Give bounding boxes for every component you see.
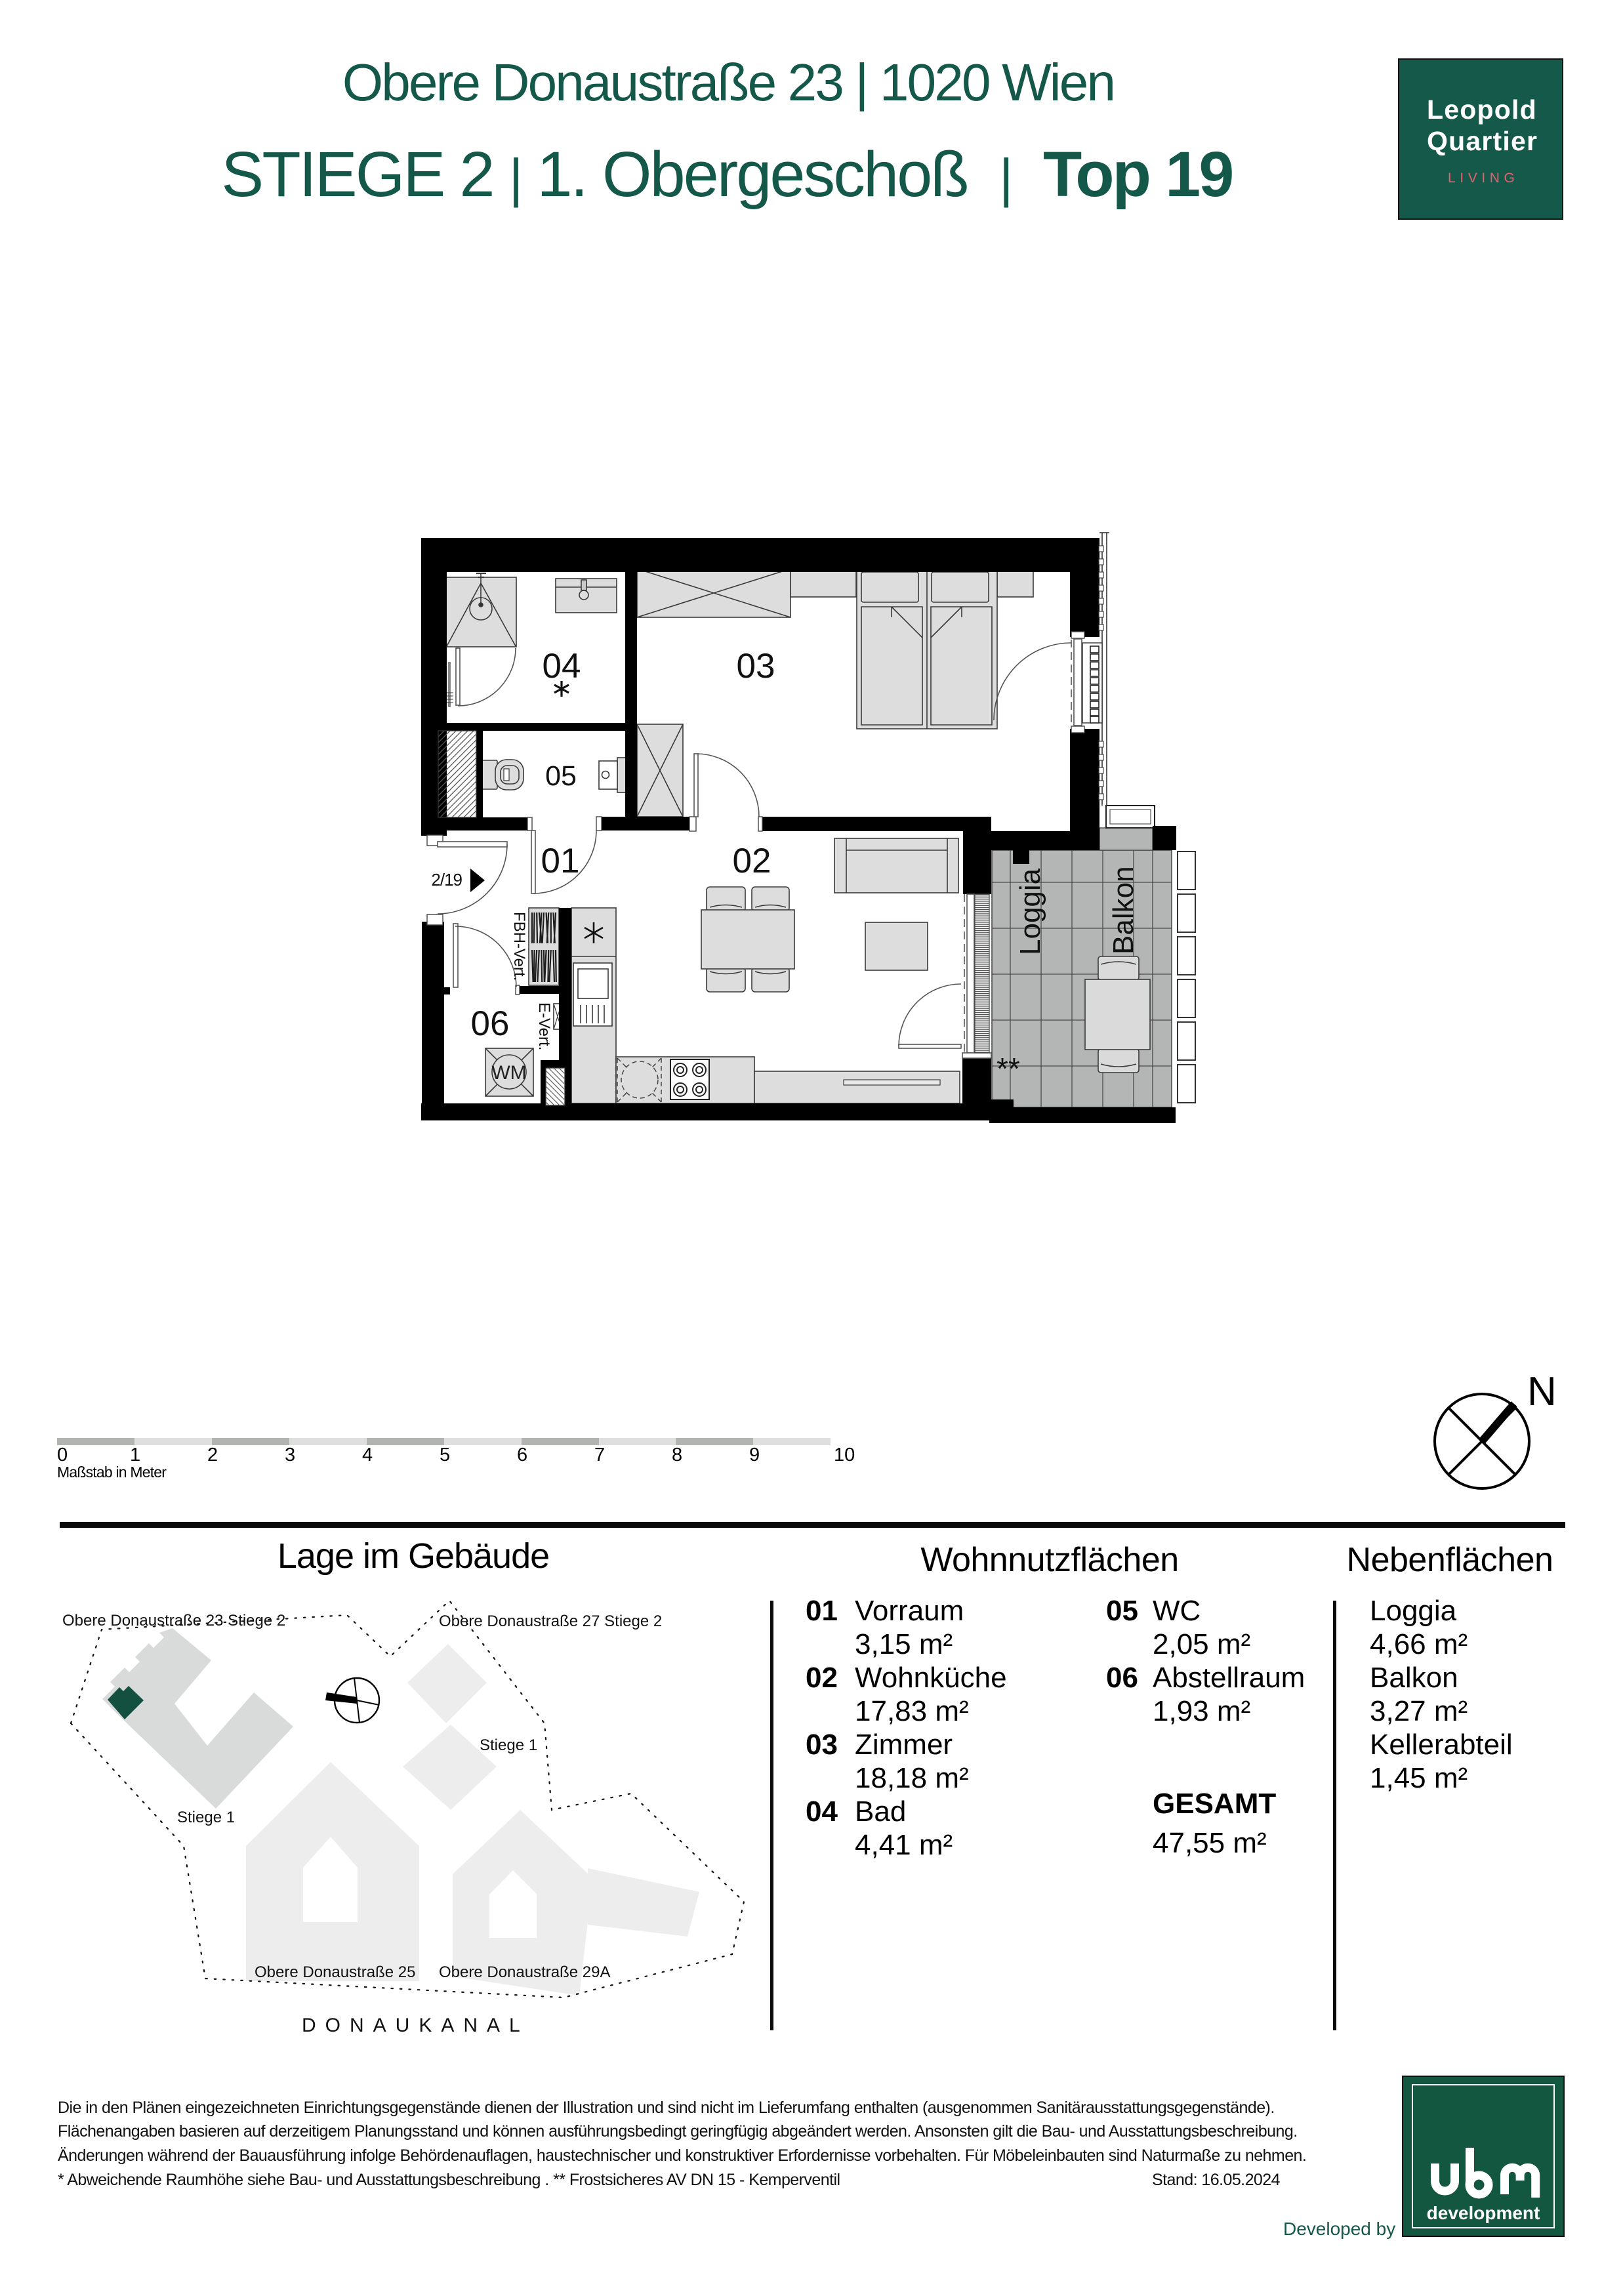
svg-text:05: 05 (545, 760, 577, 792)
svg-text:2/19: 2/19 (431, 870, 462, 890)
svg-text:Obere Donaustraße 25: Obere Donaustraße 25 (255, 1963, 415, 1981)
svg-text:04: 04 (543, 647, 581, 686)
svg-text:06: 06 (471, 1004, 510, 1043)
svg-text:E-Vert.: E-Vert. (535, 1002, 553, 1050)
svg-text:01: 01 (541, 842, 580, 880)
svg-text:WM: WM (491, 1062, 526, 1084)
svg-text:02: 02 (733, 842, 771, 880)
svg-text:Balkon: Balkon (1107, 866, 1140, 954)
svg-text:Obere Donaustraße 29A: Obere Donaustraße 29A (439, 1963, 610, 1981)
svg-text:Stiege 1: Stiege 1 (177, 1809, 235, 1826)
svg-text:Obere Donaustraße 27 Stiege 2: Obere Donaustraße 27 Stiege 2 (439, 1612, 662, 1630)
svg-text:Loggia: Loggia (1014, 868, 1046, 955)
svg-text:Stiege 1: Stiege 1 (480, 1736, 537, 1754)
svg-text:DONAUKANAL: DONAUKANAL (302, 2015, 529, 2036)
svg-text:03: 03 (737, 647, 775, 686)
svg-text:N: N (1527, 1369, 1557, 1414)
svg-text:Obere Donaustraße 23 Stiege 2: Obere Donaustraße 23 Stiege 2 (62, 1612, 285, 1630)
svg-text:**: ** (996, 1052, 1020, 1086)
svg-text:FBH-Vert.: FBH-Vert. (510, 912, 528, 981)
